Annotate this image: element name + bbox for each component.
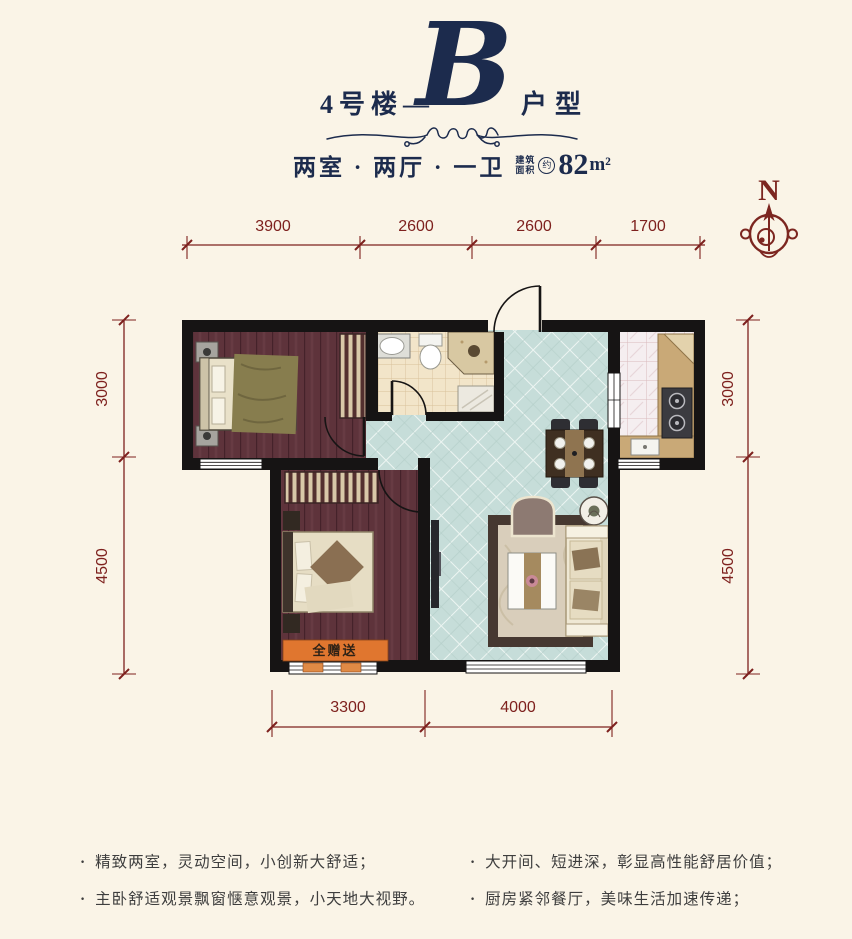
bedroom-2-furniture	[283, 472, 378, 633]
living-room-window	[466, 661, 586, 673]
dimension-left: 3000 4500	[94, 315, 136, 679]
wardrobe	[285, 472, 378, 503]
wardrobe	[340, 334, 366, 418]
bay-window-label: 全赠送	[311, 643, 357, 658]
bedroom-1-window	[200, 459, 262, 469]
dim-label: 3000	[94, 371, 111, 407]
feature-text: 精致两室，灵动空间，小创新大舒适；	[95, 852, 376, 874]
floor-plan: 全赠送	[0, 0, 852, 939]
dim-label: 4000	[500, 699, 536, 716]
toilet	[419, 334, 442, 369]
dim-label: 2600	[516, 218, 552, 235]
nightstand	[283, 511, 300, 530]
kitchen-sliding-door	[608, 373, 620, 428]
kitchen-sink	[631, 439, 659, 455]
stove	[662, 388, 692, 438]
dim-label: 1700	[630, 218, 666, 235]
dim-label: 2600	[398, 218, 434, 235]
entry-door	[494, 286, 540, 332]
feature-text: 主卧舒适观景飘窗惬意观景，小天地大视野。	[95, 889, 425, 911]
sofa	[566, 526, 608, 636]
dim-label: 4500	[94, 548, 111, 584]
dim-label: 3300	[330, 699, 366, 716]
kitchen-window	[618, 459, 660, 469]
bullet-icon: ·	[470, 889, 476, 911]
bullet-icon: ·	[80, 889, 86, 911]
dim-label: 3900	[255, 218, 291, 235]
bullet-icon: ·	[80, 852, 86, 874]
dim-label: 4500	[720, 548, 737, 584]
dimension-top: 3900 2600 2600 1700	[182, 218, 705, 259]
feature-text: 大开间、短进深，彰显高性能舒居价值；	[485, 852, 782, 874]
bed	[283, 532, 373, 613]
bullet-icon: ·	[470, 852, 476, 874]
floorplan-page: 4号楼— B 户型 两室 · 两厅 · 一卫 建筑 面积 约 82 m²	[0, 0, 852, 939]
feature-text: 厨房紧邻餐厅，美味生活加速传递；	[485, 889, 749, 911]
nightstand	[283, 614, 300, 633]
bay-window: 全赠送	[283, 640, 388, 674]
feature-item: · 大开间、短进深，彰显高性能舒居价值；	[470, 852, 852, 874]
north-compass: N	[741, 174, 797, 257]
side-table	[580, 497, 608, 525]
dim-label: 3000	[720, 371, 737, 407]
north-label: N	[758, 174, 780, 207]
bed	[200, 354, 298, 434]
dimension-right: 3000 4500	[720, 315, 760, 679]
feature-item: · 精致两室，灵动空间，小创新大舒适；	[80, 852, 470, 874]
bath-mat	[458, 386, 494, 412]
armchair	[512, 497, 554, 536]
feature-item: · 厨房紧邻餐厅，美味生活加速传递；	[470, 889, 852, 911]
coffee-table	[508, 553, 556, 609]
features-right-column: · 大开间、短进深，彰显高性能舒居价值； · 厨房紧邻餐厅，美味生活加速传递；	[470, 852, 852, 925]
feature-item: · 主卧舒适观景飘窗惬意观景，小天地大视野。	[80, 889, 470, 911]
features-left-column: · 精致两室，灵动空间，小创新大舒适； · 主卧舒适观景飘窗惬意观景，小天地大视…	[80, 852, 470, 925]
dimension-bottom: 3300 4000	[267, 690, 617, 737]
